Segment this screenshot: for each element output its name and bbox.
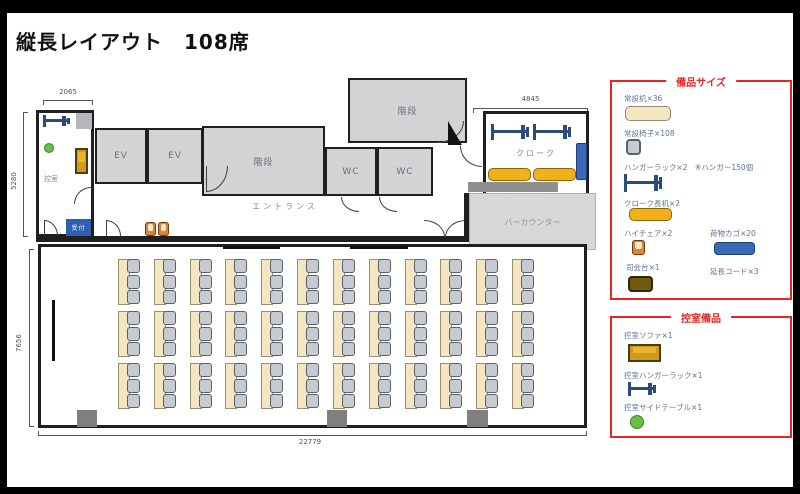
chair: [234, 379, 247, 393]
chair: [127, 363, 140, 377]
chair: [449, 290, 462, 304]
legend-hanger-label: ハンガーラック×2 ※ハンガー150個: [624, 162, 753, 173]
chair: [485, 342, 498, 356]
chair: [485, 394, 498, 408]
chair: [163, 363, 176, 377]
chair: [378, 379, 391, 393]
chair: [163, 290, 176, 304]
chair: [127, 290, 140, 304]
chair: [342, 290, 355, 304]
chair: [306, 311, 319, 325]
table-unit: [512, 259, 535, 305]
table-unit: [261, 311, 284, 357]
chair: [521, 290, 534, 304]
legend-waiting-hanger-label: 控室ハンガーラック×1: [624, 370, 703, 381]
chair: [521, 379, 534, 393]
chair: [378, 259, 391, 273]
chair: [378, 363, 391, 377]
table-unit: [476, 311, 499, 357]
chair: [234, 311, 247, 325]
table-unit: [512, 363, 535, 409]
chair: [234, 342, 247, 356]
chair: [449, 342, 462, 356]
chair: [234, 327, 247, 341]
chair: [270, 363, 283, 377]
chair: [306, 342, 319, 356]
chair: [449, 259, 462, 273]
frame-right: [793, 0, 800, 494]
table-unit: [190, 259, 213, 305]
table-unit: [369, 259, 392, 305]
seating-area: [0, 0, 600, 494]
chair: [234, 259, 247, 273]
chair: [414, 327, 427, 341]
table-unit: [333, 311, 356, 357]
chair: [270, 275, 283, 289]
chair: [127, 275, 140, 289]
chair: [414, 290, 427, 304]
chair: [485, 379, 498, 393]
legend-high-chair-label: ハイチェア×2: [624, 228, 672, 239]
chair: [521, 327, 534, 341]
chair: [414, 394, 427, 408]
chair: [163, 311, 176, 325]
chair: [342, 363, 355, 377]
legend-podium-label: 司会台×1: [626, 262, 660, 273]
legend-basket-label: 荷物カゴ×20: [710, 228, 756, 239]
chair: [306, 327, 319, 341]
chair: [378, 327, 391, 341]
chair: [342, 311, 355, 325]
chair: [378, 342, 391, 356]
legend-desk-label: 常設机×36: [624, 93, 662, 104]
table-unit: [369, 363, 392, 409]
table-unit: [154, 311, 177, 357]
table-unit: [297, 259, 320, 305]
table-unit: [405, 311, 428, 357]
chair: [449, 363, 462, 377]
chair: [163, 259, 176, 273]
legend-equipment-title: 備品サイズ: [666, 74, 736, 89]
side-table-icon-legend: [630, 415, 644, 429]
chair: [342, 259, 355, 273]
table-unit: [261, 259, 284, 305]
table-unit: [476, 363, 499, 409]
chair: [414, 379, 427, 393]
table-unit: [405, 259, 428, 305]
chair: [234, 290, 247, 304]
chair: [270, 327, 283, 341]
chair: [306, 290, 319, 304]
chair: [521, 363, 534, 377]
chair: [270, 342, 283, 356]
chair: [163, 394, 176, 408]
legend-waiting-title: 控室備品: [671, 310, 731, 325]
chair: [449, 394, 462, 408]
chair: [485, 363, 498, 377]
table-unit: [118, 259, 141, 305]
chair: [127, 259, 140, 273]
table-unit: [440, 311, 463, 357]
table-unit: [190, 363, 213, 409]
chair: [234, 394, 247, 408]
chair: [199, 379, 212, 393]
chair: [378, 311, 391, 325]
chair: [521, 311, 534, 325]
chair: [521, 275, 534, 289]
table-unit: [476, 259, 499, 305]
chair: [485, 290, 498, 304]
table-unit: [405, 363, 428, 409]
chair: [449, 311, 462, 325]
chair: [127, 327, 140, 341]
chair: [414, 342, 427, 356]
chair: [199, 275, 212, 289]
floor-plan: 2065 5280 7656 22779 4845 控室 EV EV 階段 WC…: [0, 0, 600, 494]
desk-icon: [625, 106, 671, 121]
table-unit: [154, 259, 177, 305]
chair: [127, 394, 140, 408]
chair: [270, 311, 283, 325]
chair: [199, 342, 212, 356]
chair: [485, 275, 498, 289]
chair: [199, 363, 212, 377]
chair: [163, 342, 176, 356]
chair: [199, 259, 212, 273]
chair: [127, 342, 140, 356]
chair: [163, 379, 176, 393]
chair: [306, 394, 319, 408]
table-unit: [333, 363, 356, 409]
chair: [485, 327, 498, 341]
chair: [449, 327, 462, 341]
chair: [378, 394, 391, 408]
table-unit: [512, 311, 535, 357]
legend-sofa-label: 控室ソファ×1: [624, 330, 673, 341]
chair: [485, 311, 498, 325]
slide: 縦長レイアウト 108席 2065 5280 7656 22779 4845 控…: [0, 0, 800, 494]
table-unit: [333, 259, 356, 305]
chair: [306, 379, 319, 393]
chair: [270, 259, 283, 273]
table-unit: [297, 363, 320, 409]
chair: [306, 259, 319, 273]
podium-icon: [628, 276, 653, 292]
chair: [342, 394, 355, 408]
chair: [521, 394, 534, 408]
cloak-desk-icon: [629, 208, 672, 221]
chair: [234, 363, 247, 377]
chair: [449, 275, 462, 289]
chair: [521, 259, 534, 273]
chair: [306, 363, 319, 377]
chair: [199, 394, 212, 408]
chair: [163, 327, 176, 341]
chair: [342, 342, 355, 356]
table-unit: [261, 363, 284, 409]
hanger-rack-icon-legend: [624, 174, 662, 192]
chair: [485, 259, 498, 273]
chair: [378, 290, 391, 304]
chair: [163, 275, 176, 289]
high-chair-icon-legend: [632, 240, 645, 255]
chair: [414, 275, 427, 289]
chair: [306, 275, 319, 289]
chair: [270, 394, 283, 408]
chair: [342, 275, 355, 289]
table-unit: [118, 363, 141, 409]
legend-equipment: 備品サイズ 常設机×36 常設椅子×108 ハンガーラック×2 ※ハンガー150…: [610, 80, 792, 300]
chair: [521, 342, 534, 356]
chair: [414, 259, 427, 273]
legend-cord-label: 延長コード×3: [710, 266, 759, 277]
table-unit: [440, 363, 463, 409]
table-unit: [297, 311, 320, 357]
table-unit: [225, 363, 248, 409]
legend-waiting-room: 控室備品 控室ソファ×1 控室ハンガーラック×1 控室サイドテーブル×1: [610, 316, 792, 438]
chair: [127, 379, 140, 393]
table-unit: [190, 311, 213, 357]
chair: [270, 290, 283, 304]
table-unit: [440, 259, 463, 305]
chair: [199, 290, 212, 304]
chair: [449, 379, 462, 393]
chair: [342, 327, 355, 341]
table-unit: [225, 259, 248, 305]
waiting-hanger-icon-legend: [628, 382, 656, 396]
legend-side-table-label: 控室サイドテーブル×1: [624, 402, 702, 413]
table-unit: [118, 311, 141, 357]
table-unit: [369, 311, 392, 357]
chair: [127, 311, 140, 325]
chair: [199, 311, 212, 325]
basket-icon: [714, 242, 755, 255]
chair: [234, 275, 247, 289]
chair: [199, 327, 212, 341]
legend-chair-label: 常設椅子×108: [624, 128, 675, 139]
chair: [378, 275, 391, 289]
chair: [414, 311, 427, 325]
chair: [270, 379, 283, 393]
chair: [414, 363, 427, 377]
chair-icon: [626, 139, 641, 155]
chair: [342, 379, 355, 393]
table-unit: [154, 363, 177, 409]
sofa-icon-legend: [628, 344, 661, 362]
table-unit: [225, 311, 248, 357]
